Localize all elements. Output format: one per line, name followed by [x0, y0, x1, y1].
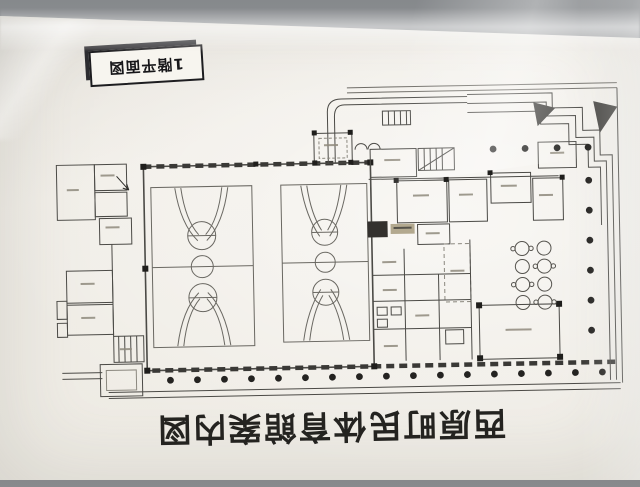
basketball-court-right: [281, 183, 370, 342]
sleeve-glare-right: [580, 0, 640, 480]
basketball-court-left: [151, 186, 255, 348]
floor-label-text: 1階平面図: [108, 53, 185, 79]
plan-title-text: 西原町民体育館案内図: [156, 402, 507, 457]
photo-floor-plan: { "badge": { "label": "1階平面図" }, "title"…: [0, 0, 640, 480]
arena: [140, 155, 617, 374]
plan-title: 西原町民体育館案内図: [153, 401, 510, 458]
floor-label-badge: 1階平面図: [88, 44, 204, 87]
round-tables: [511, 241, 557, 310]
left-wing-rooms: [54, 164, 144, 398]
scene: 1階平面図 西原町民体育館案内図: [0, 0, 640, 480]
